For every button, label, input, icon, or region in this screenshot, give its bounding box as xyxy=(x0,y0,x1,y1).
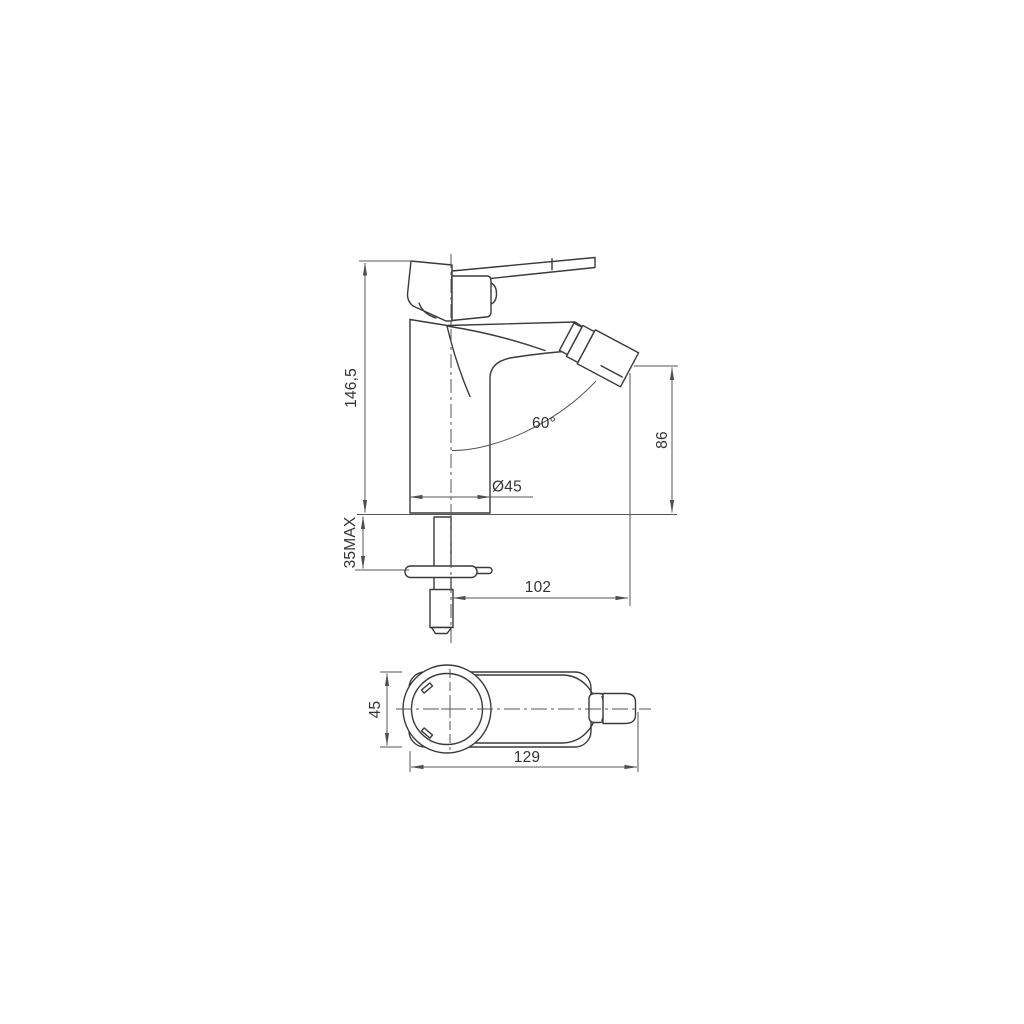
dim-spout-reach-label: 102 xyxy=(525,579,551,596)
dim-mounting-depth-label: 35MAX xyxy=(342,516,359,568)
washer xyxy=(405,566,477,578)
dim-base-diameter-label: Ø45 xyxy=(492,479,522,496)
technical-drawing-page: 146,5 35MAX 86 102 Ø45 xyxy=(0,0,1024,1024)
mounting-nut-chamfer xyxy=(432,628,452,634)
canvas-background xyxy=(0,0,1024,1024)
dim-spout-angle-label: 60° xyxy=(532,415,556,432)
mounting-rod xyxy=(434,517,451,590)
handle-pivot-block xyxy=(452,276,491,321)
dim-total-height-label: 146,5 xyxy=(343,368,360,408)
mounting-nut xyxy=(430,590,453,628)
dim-outlet-height-label: 86 xyxy=(654,431,671,449)
faucet-cad-canvas: 146,5 35MAX 86 102 Ø45 xyxy=(0,0,1024,1024)
dim-total-length-label: 129 xyxy=(514,749,540,766)
dim-body-width-label: 45 xyxy=(367,701,384,719)
